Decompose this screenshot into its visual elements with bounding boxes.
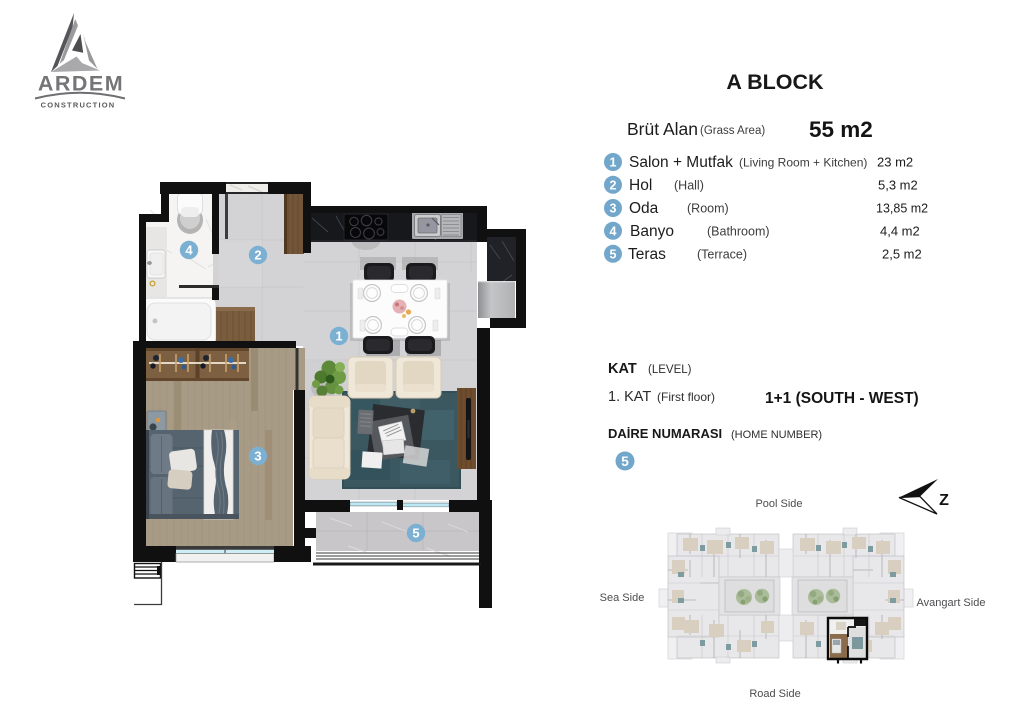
svg-text:4,4 m2: 4,4 m2 <box>880 223 920 238</box>
svg-text:55 m2: 55 m2 <box>809 117 873 142</box>
svg-text:(Hall): (Hall) <box>674 178 704 192</box>
svg-text:5: 5 <box>621 454 629 469</box>
svg-text:Pool Side: Pool Side <box>755 498 802 510</box>
svg-text:Salon + Mutfak: Salon + Mutfak <box>629 154 733 171</box>
svg-text:Road Side: Road Side <box>749 688 800 700</box>
svg-text:KAT: KAT <box>608 361 637 377</box>
svg-text:CONSTRUCTION: CONSTRUCTION <box>41 101 116 110</box>
svg-text:2: 2 <box>610 178 617 192</box>
svg-text:(LEVEL): (LEVEL) <box>648 364 692 376</box>
svg-text:(First floor): (First floor) <box>657 390 715 404</box>
svg-text:4: 4 <box>610 224 617 238</box>
svg-text:1: 1 <box>335 329 342 344</box>
svg-text:Avangart Side: Avangart Side <box>917 597 986 609</box>
svg-text:(Terrace): (Terrace) <box>697 247 747 261</box>
svg-text:A BLOCK: A BLOCK <box>726 70 824 94</box>
svg-text:Brüt Alan: Brüt Alan <box>627 119 698 139</box>
svg-text:(Bathroom): (Bathroom) <box>707 224 770 238</box>
svg-text:(HOME NUMBER): (HOME NUMBER) <box>731 429 822 441</box>
svg-text:5,3 m2: 5,3 m2 <box>878 177 918 192</box>
svg-text:DAİRE NUMARASI: DAİRE NUMARASI <box>608 426 722 441</box>
svg-text:(Room): (Room) <box>687 202 729 216</box>
svg-text:5: 5 <box>412 526 419 541</box>
svg-text:1. KAT: 1. KAT <box>608 389 651 405</box>
svg-text:(Living Room + Kitchen): (Living Room + Kitchen) <box>739 156 867 170</box>
svg-text:5: 5 <box>610 247 617 261</box>
svg-text:4: 4 <box>185 243 193 258</box>
svg-text:(Grass Area): (Grass Area) <box>700 125 765 137</box>
svg-text:3: 3 <box>610 202 617 216</box>
svg-text:2,5 m2: 2,5 m2 <box>882 246 922 261</box>
svg-text:2: 2 <box>254 248 261 263</box>
svg-text:1: 1 <box>610 156 617 170</box>
svg-text:Z: Z <box>939 492 949 509</box>
svg-text:Sea Side: Sea Side <box>600 592 645 604</box>
svg-text:Oda: Oda <box>629 200 659 217</box>
svg-text:Banyo: Banyo <box>630 223 674 240</box>
svg-text:1+1 (SOUTH - WEST): 1+1 (SOUTH - WEST) <box>765 390 919 407</box>
svg-text:Hol: Hol <box>629 177 652 194</box>
svg-text:3: 3 <box>254 449 261 464</box>
svg-text:23 m2: 23 m2 <box>877 155 913 170</box>
svg-text:Teras: Teras <box>628 246 666 263</box>
svg-text:13,85 m2: 13,85 m2 <box>876 202 928 216</box>
